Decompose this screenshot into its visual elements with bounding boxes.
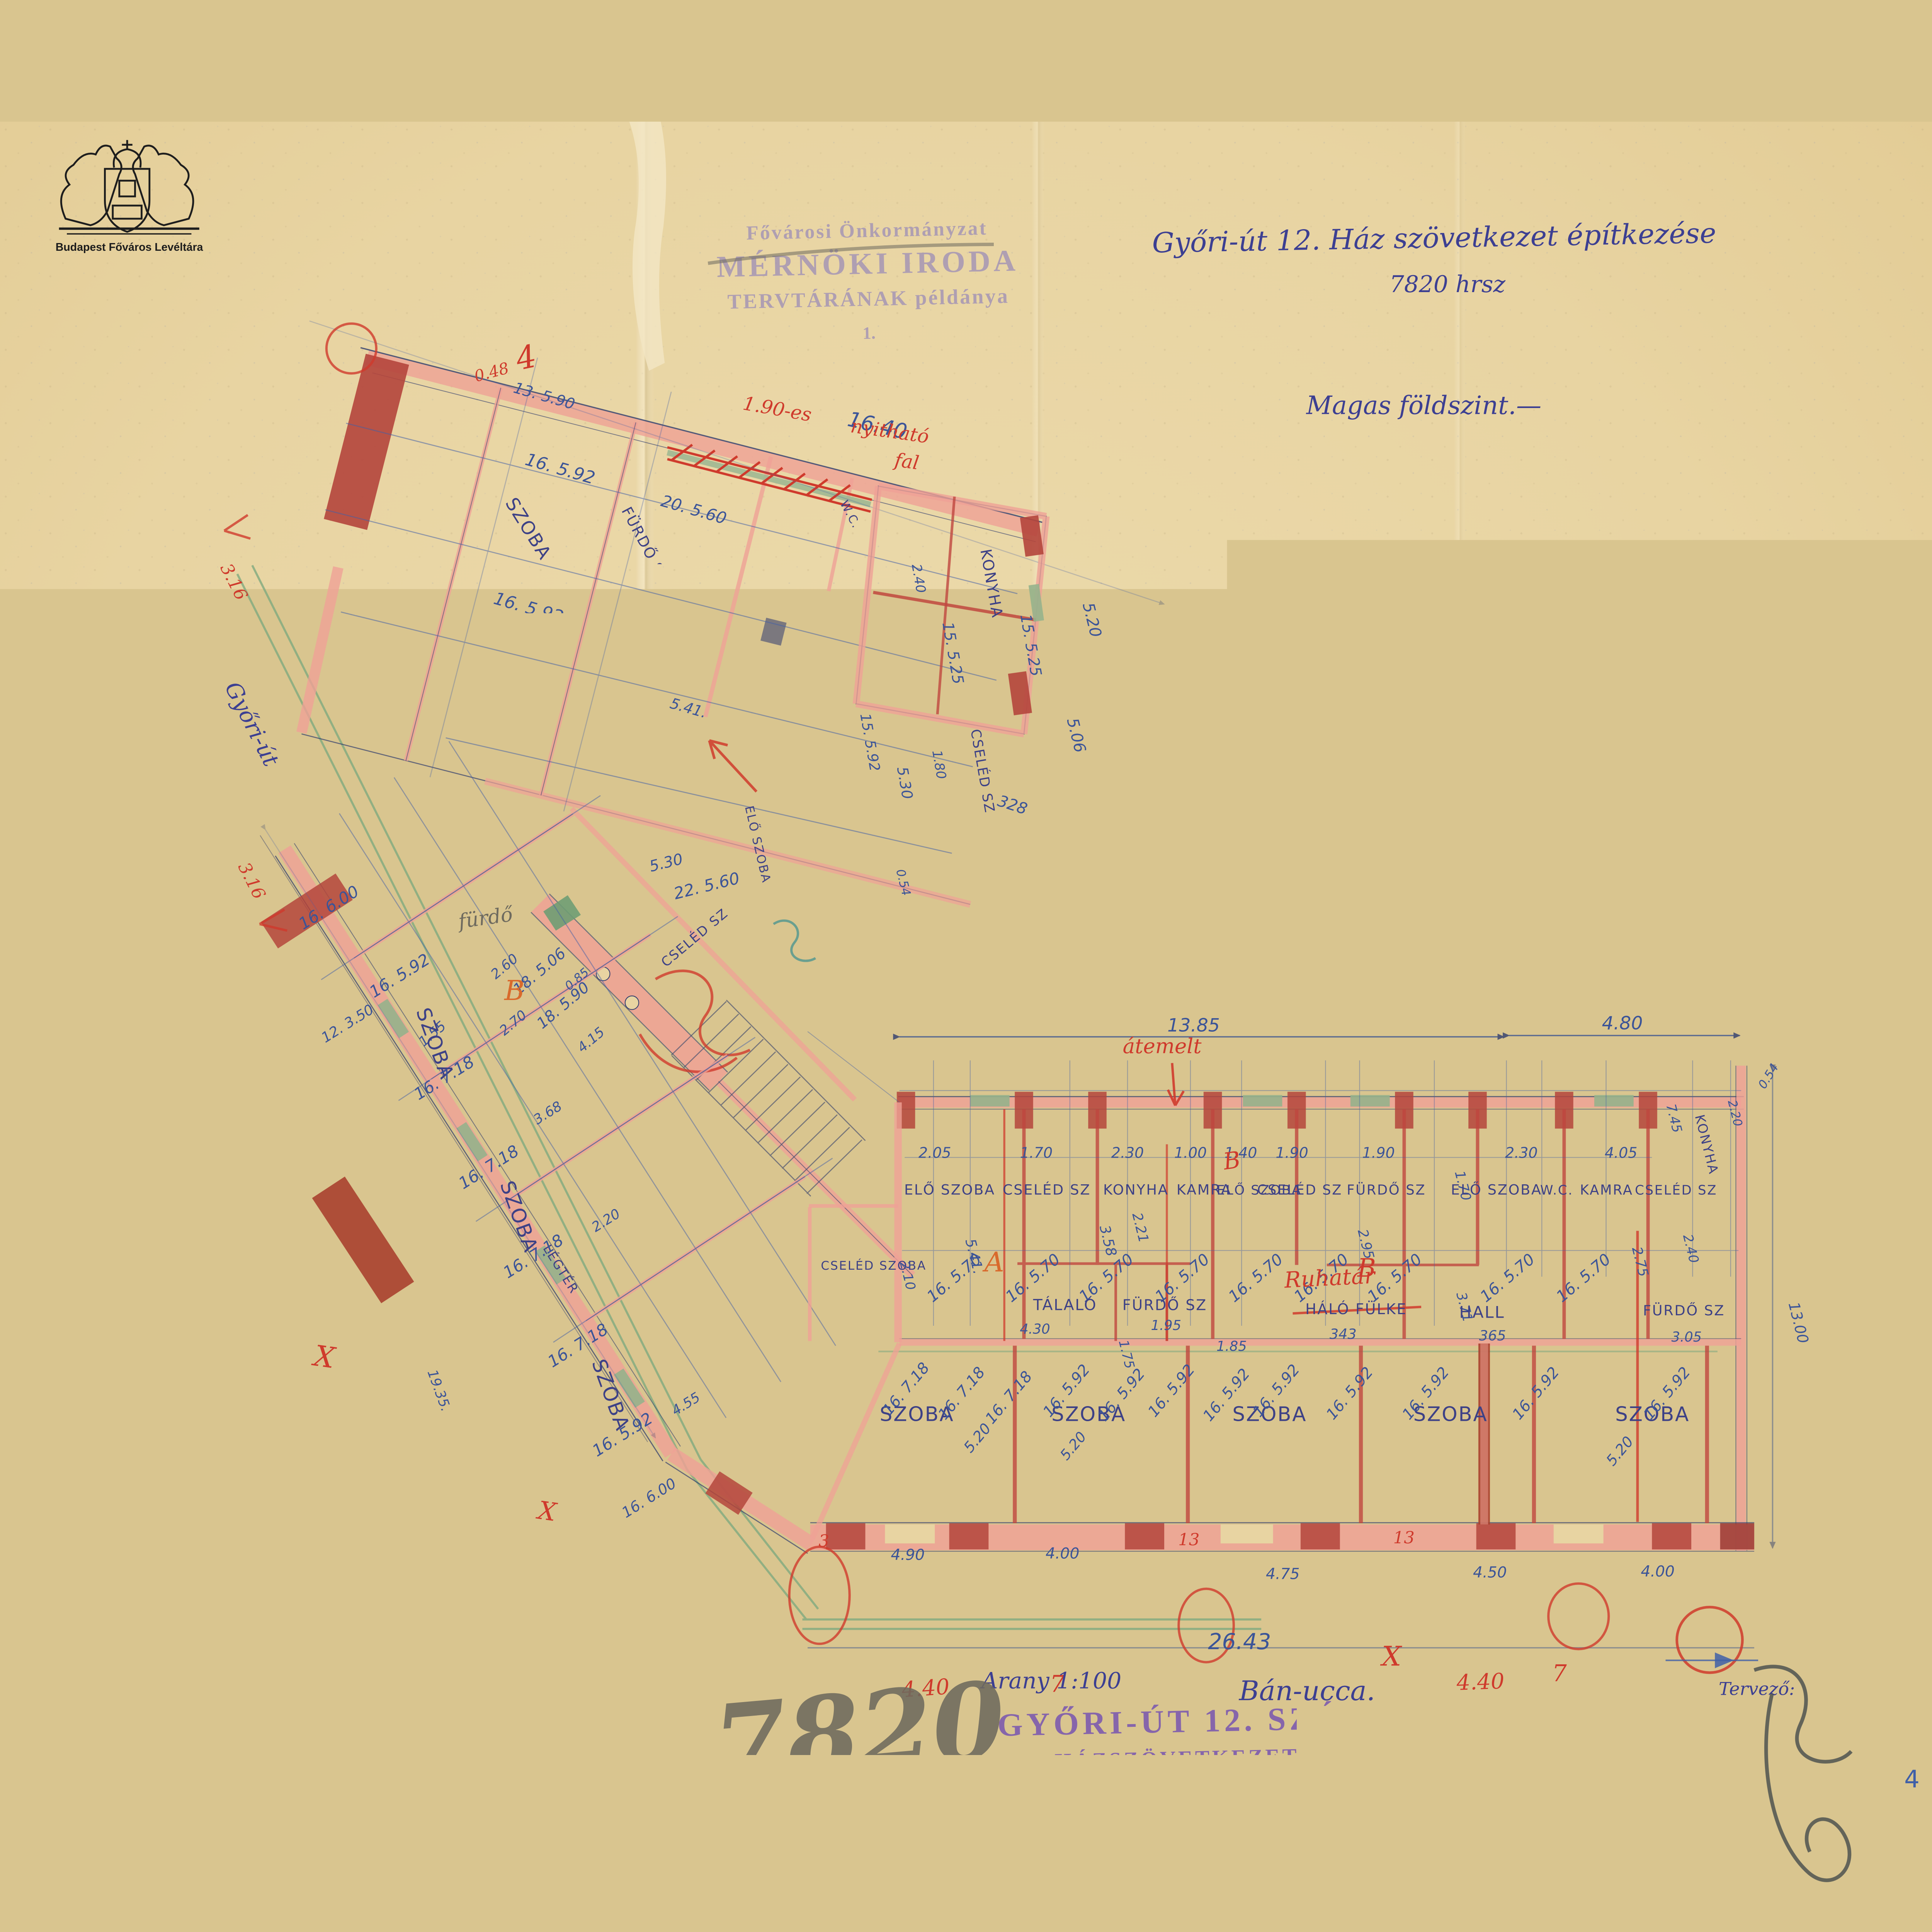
dim-label: 4.00 xyxy=(1046,1545,1080,1563)
dim-label: 4.90 xyxy=(891,1546,925,1564)
red-annotation: B xyxy=(1357,1254,1376,1283)
designer-label: Tervező: xyxy=(1719,1679,1795,1699)
room-label: KAMRA xyxy=(1580,1182,1633,1198)
scanned-floor-plan-sheet: Budapest Főváros Levéltára Fővárosi Önko… xyxy=(0,0,1932,1932)
room-label: FÜRDŐ SZ xyxy=(1643,1302,1725,1319)
archive-name: Budapest Főváros Levéltára xyxy=(56,241,204,253)
room-label: CSELÉD SZ xyxy=(1257,1182,1343,1198)
fold-crease-horizontal xyxy=(0,987,637,996)
page-number: 4 xyxy=(1904,1765,1920,1793)
dim-label: 1.90 xyxy=(1362,1145,1395,1162)
red-annotation: 13 xyxy=(1393,1528,1415,1548)
room-label: HÁLÓ FÜLKE xyxy=(1305,1301,1407,1318)
room-label: ELŐ SZOBA xyxy=(904,1181,995,1198)
dim-label: 1.70 xyxy=(1020,1145,1053,1162)
dim-label: 2.05 xyxy=(918,1145,951,1162)
dim-label: 4.00 xyxy=(1641,1563,1675,1580)
stamp-line: 1. xyxy=(862,323,876,343)
red-annotation: B xyxy=(503,975,524,1007)
fold-crease xyxy=(1032,122,1044,1810)
red-annotation: 3 xyxy=(818,1532,829,1551)
dim-label: 3.05 xyxy=(1672,1329,1702,1345)
master-builder-label: Felelős ép mester: xyxy=(119,1647,285,1668)
archive-big-number: 7820 xyxy=(709,1658,1010,1806)
paper-texture xyxy=(0,122,1932,1810)
room-label: TÁLALÓ xyxy=(1033,1296,1097,1314)
red-annotation: A xyxy=(982,1246,1004,1278)
plan-canvas: Budapest Főváros Levéltára Fővárosi Önko… xyxy=(0,0,1932,1932)
dim-label: 13.85 xyxy=(1167,1015,1220,1036)
parcel-number: 7820 hrsz xyxy=(1389,271,1506,298)
dim-label: 4.30 xyxy=(1020,1321,1050,1337)
red-annotation: X xyxy=(1380,1640,1402,1672)
red-annotation: fal xyxy=(892,449,920,474)
paper-under-edge xyxy=(637,1803,1057,1810)
room-label: W.C. xyxy=(1540,1183,1573,1198)
room-label: ELŐ SZOBA xyxy=(1451,1181,1542,1198)
fold-crease xyxy=(1454,122,1466,1810)
dim-label: 365 xyxy=(1479,1327,1506,1344)
dim-label: 4.80 xyxy=(1602,1013,1643,1034)
dim-label: 343 xyxy=(1330,1326,1357,1342)
dim-label: 1.95 xyxy=(1151,1318,1182,1333)
dim-label: 1.90 xyxy=(1276,1145,1308,1162)
dim-label: 1.00 xyxy=(1174,1145,1207,1162)
dim-label: 4.75 xyxy=(1266,1565,1300,1583)
dim-label: 4.05 xyxy=(1605,1145,1638,1162)
dim-label: 2.30 xyxy=(1505,1145,1538,1162)
fold-crease xyxy=(636,122,655,1810)
red-annotation: 7 xyxy=(1552,1660,1567,1687)
floor-label: Magas földszint.— xyxy=(1306,391,1541,420)
red-annotation: 4.40 xyxy=(1456,1668,1505,1695)
room-label: CSELÉD SZ xyxy=(1635,1182,1717,1198)
dim-label: 1.85 xyxy=(1216,1338,1247,1354)
stamp-line: MÉRNÖKI IRODA xyxy=(716,244,1019,284)
room-label: FÜRDŐ SZ xyxy=(1122,1296,1207,1313)
room-label: FÜRDŐ SZ xyxy=(1347,1182,1426,1198)
red-annotation: 13 xyxy=(1178,1531,1199,1550)
room-label: CSELÉD SZ xyxy=(1003,1181,1091,1198)
room-label: HALL xyxy=(1459,1303,1505,1322)
dim-label: 4.50 xyxy=(1473,1564,1507,1582)
dim-label: 2.30 xyxy=(1111,1145,1144,1162)
dim-label: 26.43 xyxy=(1208,1629,1271,1655)
room-label: KONYHA xyxy=(1103,1182,1169,1198)
red-annotation: átemelt xyxy=(1123,1034,1202,1058)
